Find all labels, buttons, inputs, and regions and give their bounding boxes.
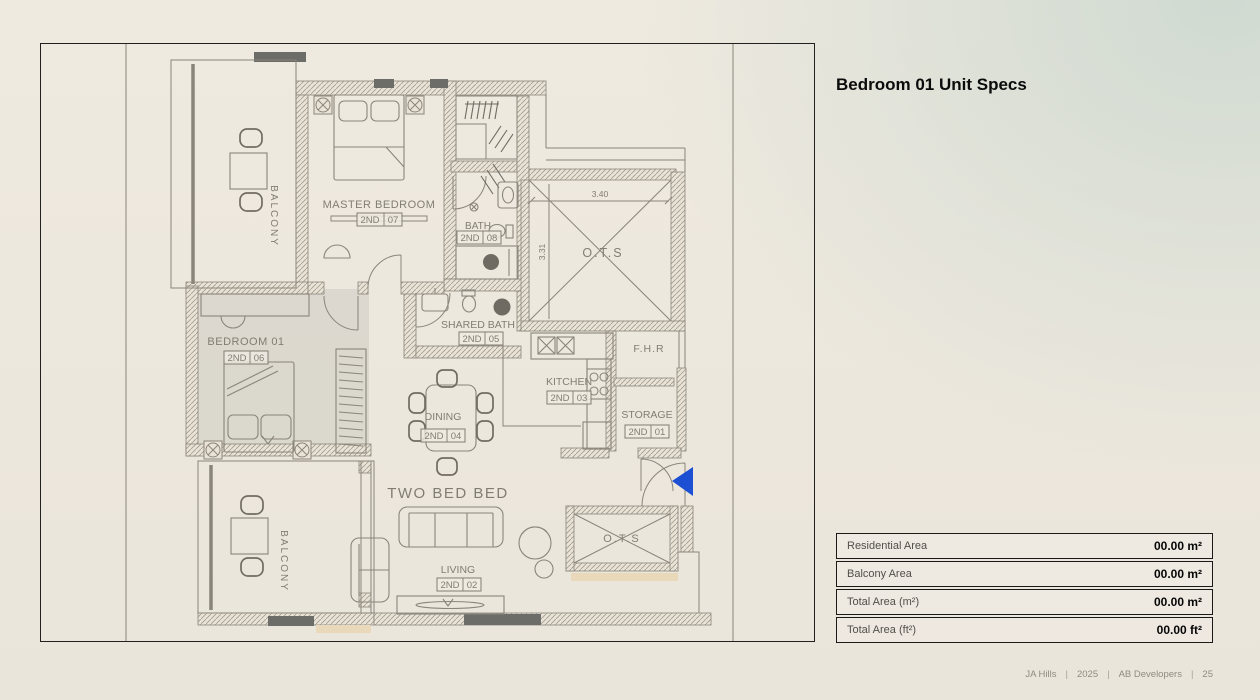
ots-width-dimension: 3.40 (592, 189, 609, 199)
spec-row-balcony-area: Balcony Area 00.00 m² (836, 561, 1213, 587)
spec-row-residential-area: Residential Area 00.00 m² (836, 533, 1213, 559)
floor-plan-drawing: MASTER BEDROOM 2ND 07 BATH 2ND 08 SHARED… (41, 44, 814, 641)
svg-text:DINING: DINING (425, 411, 462, 423)
page-title: Bedroom 01 Unit Specs (836, 75, 1027, 95)
footer-year: 2025 (1077, 669, 1098, 680)
room-label-living[interactable]: LIVING 2ND 02 (437, 564, 481, 591)
footer: JA Hills | 2025 | AB Developers | 25 (1025, 669, 1213, 680)
svg-text:03: 03 (577, 393, 588, 404)
svg-text:SHARED BATH: SHARED BATH (441, 319, 515, 331)
spec-row-total-area-ft2: Total Area (ft²) 00.00 ft² (836, 617, 1213, 643)
svg-text:2ND: 2ND (550, 393, 569, 404)
room-label-master-bedroom[interactable]: MASTER BEDROOM 2ND 07 (323, 199, 436, 226)
spec-label: Balcony Area (847, 568, 912, 580)
unit-specs-table: Residential Area 00.00 m² Balcony Area 0… (836, 533, 1213, 645)
svg-text:2ND: 2ND (628, 427, 647, 438)
svg-text:BEDROOM 01: BEDROOM 01 (207, 336, 284, 348)
svg-text:06: 06 (254, 353, 265, 364)
balcony-bottom-furniture (231, 496, 268, 576)
spec-label: Total Area (ft²) (847, 624, 916, 636)
room-label-storage[interactable]: STORAGE 2ND 01 (621, 409, 672, 438)
spec-value: 00.00 m² (1154, 567, 1202, 581)
balcony-bottom-label: BALCONY (278, 530, 289, 592)
room-label-shared-bath[interactable]: SHARED BATH 2ND 05 (441, 319, 515, 345)
ots-bottom-label: O.T.S (603, 533, 641, 545)
entrance-arrow-icon (672, 467, 693, 496)
wardrobe-hangers (465, 101, 513, 194)
svg-text:02: 02 (467, 580, 478, 591)
spec-label: Total Area (m²) (847, 596, 919, 608)
fhr-label: F.H.R (633, 343, 664, 355)
svg-text:BATH: BATH (465, 221, 491, 232)
footer-separator: | (1107, 669, 1109, 680)
spec-value: 00.00 m² (1154, 595, 1202, 609)
ots-height-dimension: 3.31 (537, 243, 547, 260)
svg-text:LIVING: LIVING (441, 564, 475, 576)
unit-type-label: TWO BED BED (387, 485, 509, 502)
svg-text:05: 05 (489, 334, 500, 345)
living-furniture (351, 507, 553, 614)
ots-top-label: O.T.S (582, 246, 623, 260)
footer-separator: | (1066, 669, 1068, 680)
svg-text:01: 01 (655, 427, 666, 438)
svg-text:04: 04 (451, 431, 462, 442)
svg-text:07: 07 (388, 215, 399, 226)
spec-label: Residential Area (847, 540, 927, 552)
shared-bath-fixtures (422, 288, 511, 316)
floor-plan-panel: MASTER BEDROOM 2ND 07 BATH 2ND 08 SHARED… (40, 43, 815, 642)
svg-text:2ND: 2ND (462, 334, 481, 345)
footer-separator: | (1191, 669, 1193, 680)
svg-text:2ND: 2ND (424, 431, 443, 442)
footer-project-name: JA Hills (1025, 669, 1056, 680)
svg-text:2ND: 2ND (360, 215, 379, 226)
room-label-kitchen[interactable]: KITCHEN 2ND 03 (546, 376, 592, 404)
master-bench (324, 245, 350, 258)
footer-developer: AB Developers (1119, 669, 1182, 680)
svg-text:08: 08 (487, 233, 498, 244)
spec-value: 00.00 ft² (1157, 623, 1202, 637)
balcony-top-label: BALCONY (268, 185, 279, 247)
tv-mark (443, 599, 453, 606)
spec-value: 00.00 m² (1154, 539, 1202, 553)
svg-text:2ND: 2ND (440, 580, 459, 591)
svg-text:MASTER BEDROOM: MASTER BEDROOM (323, 199, 436, 211)
footer-page-number: 25 (1202, 669, 1213, 680)
master-bed (334, 95, 404, 180)
svg-text:STORAGE: STORAGE (621, 409, 672, 421)
svg-text:2ND: 2ND (227, 353, 246, 364)
room-label-dining[interactable]: DINING 2ND 04 (421, 411, 465, 442)
balcony-top-furniture (230, 129, 267, 211)
spec-row-total-area-m2: Total Area (m²) 00.00 m² (836, 589, 1213, 615)
svg-text:2ND: 2ND (460, 233, 479, 244)
svg-text:KITCHEN: KITCHEN (546, 376, 592, 388)
